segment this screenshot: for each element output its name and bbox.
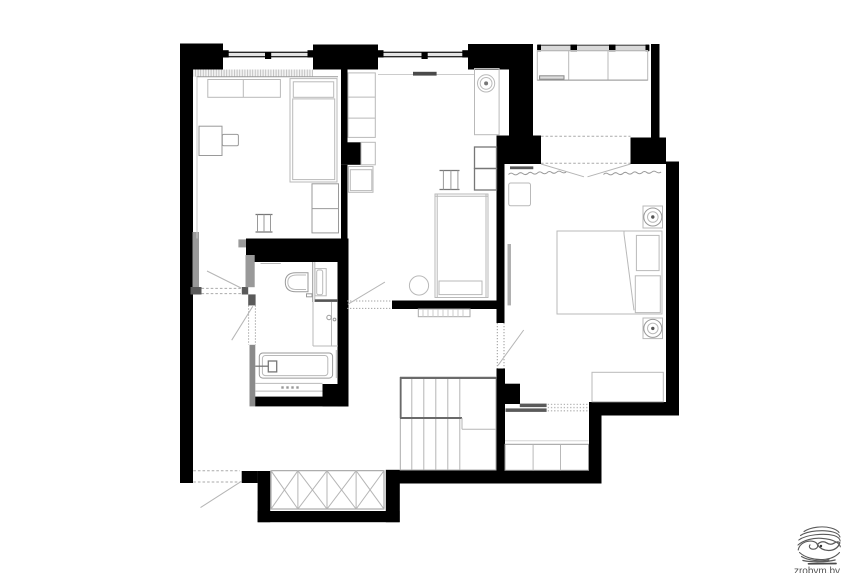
svg-text:zrobym.by: zrobym.by xyxy=(794,566,840,573)
